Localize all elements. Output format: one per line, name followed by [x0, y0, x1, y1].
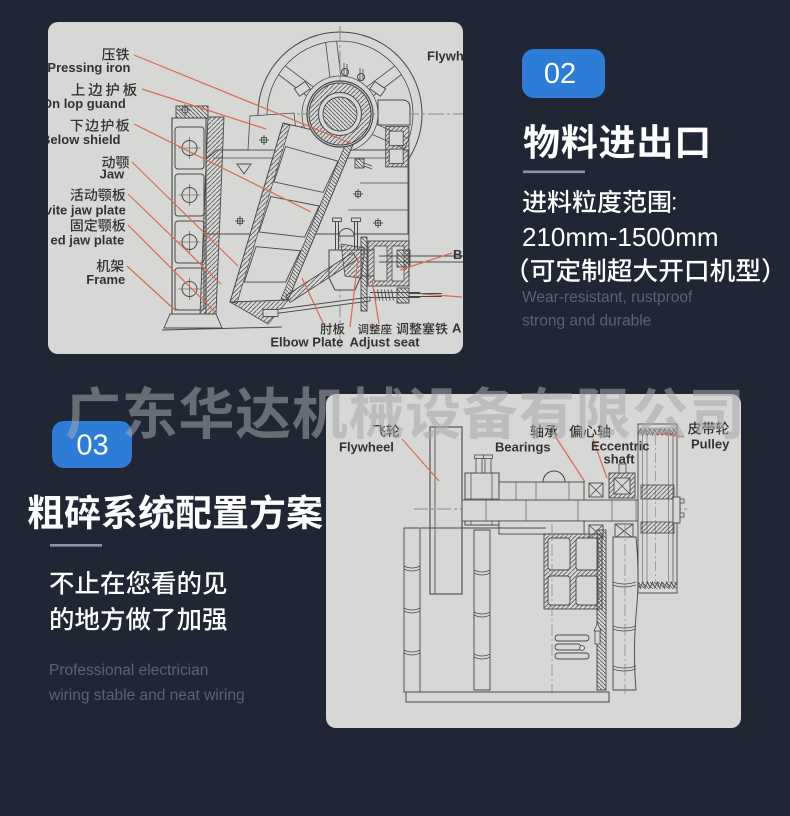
svg-text:Elbow Plate: Elbow Plate [270, 335, 343, 350]
svg-text::: : [671, 189, 677, 215]
svg-text:B: B [453, 247, 462, 262]
svg-text:A: A [452, 321, 462, 336]
svg-text:ed jaw plate: ed jaw plate [50, 233, 124, 248]
svg-text:On lop guand: On lop guand [42, 96, 126, 111]
svg-text:Jaw: Jaw [100, 167, 125, 182]
svg-text:wiring stable and neat wiring: wiring stable and neat wiring [48, 687, 245, 704]
svg-text:Adjust seat: Adjust seat [350, 335, 421, 350]
svg-text:Pressing iron: Pressing iron [47, 60, 130, 75]
svg-text:Pulley: Pulley [691, 437, 730, 452]
svg-text:Bearings: Bearings [495, 440, 551, 455]
svg-text:03: 03 [76, 430, 108, 462]
svg-text:Flywheel: Flywheel [339, 440, 394, 455]
svg-text:02: 02 [544, 58, 576, 90]
svg-text:Below shield: Below shield [41, 132, 121, 147]
svg-text:Professional electrician: Professional electrician [49, 662, 208, 679]
svg-text:Wear-resistant, rustproof: Wear-resistant, rustproof [522, 289, 693, 306]
svg-text:Frame: Frame [86, 272, 125, 287]
svg-text:vite jaw plate: vite jaw plate [45, 203, 126, 218]
svg-text:210mm-1500mm: 210mm-1500mm [522, 222, 719, 252]
svg-text:shaft: shaft [604, 452, 636, 467]
svg-text:strong and durable: strong and durable [522, 313, 651, 330]
